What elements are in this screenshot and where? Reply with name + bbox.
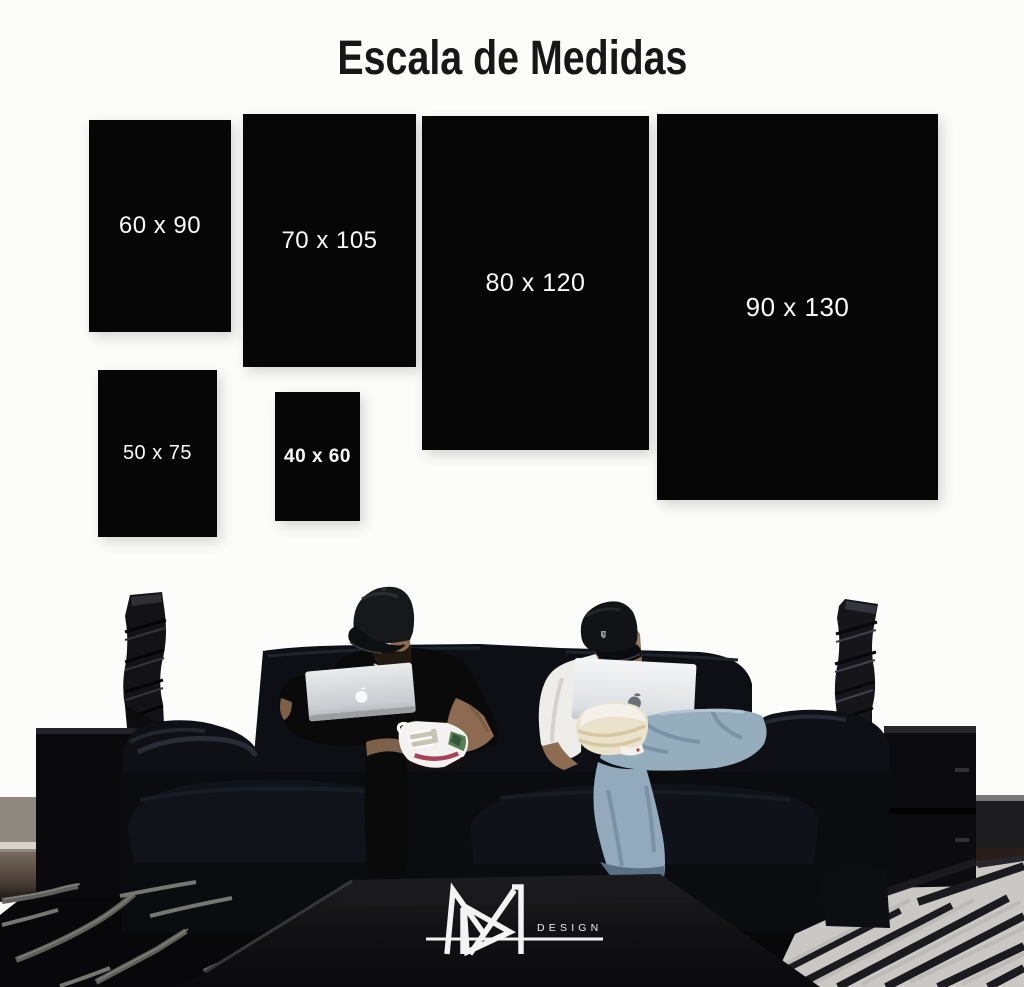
svg-text:DESIGN: DESIGN (537, 922, 602, 934)
